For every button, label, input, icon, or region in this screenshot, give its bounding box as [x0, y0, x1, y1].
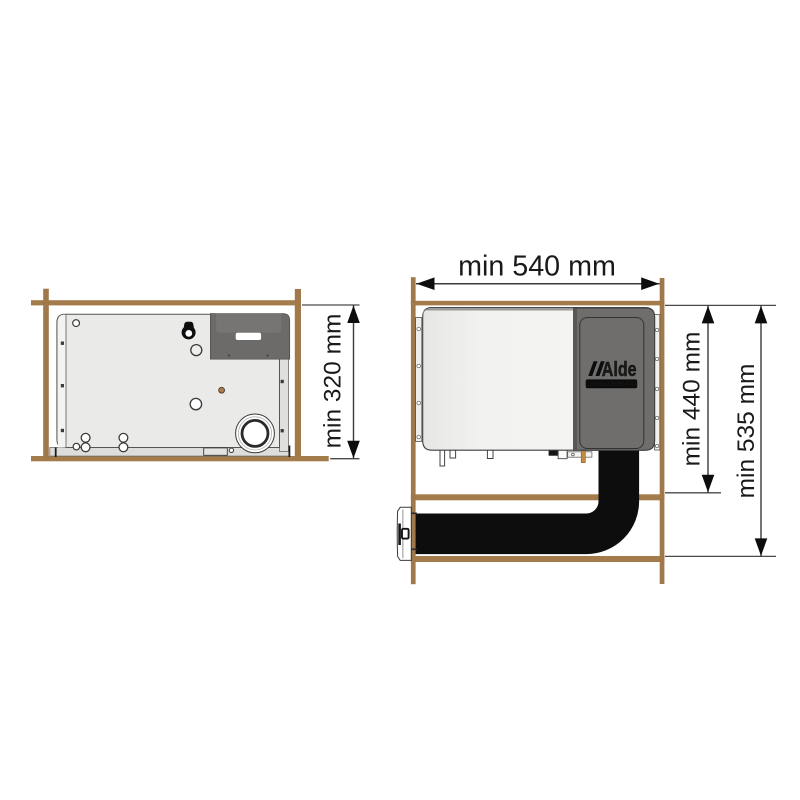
svg-text:Compact 3030 Plus: Compact 3030 Plus: [585, 382, 637, 388]
svg-text:min 535 mm: min 535 mm: [733, 364, 760, 499]
svg-text:min 320 mm: min 320 mm: [319, 314, 346, 449]
svg-text:min 440 mm: min 440 mm: [679, 332, 706, 467]
svg-text:Alde: Alde: [602, 358, 637, 381]
svg-text:min 540 mm: min 540 mm: [458, 251, 616, 283]
